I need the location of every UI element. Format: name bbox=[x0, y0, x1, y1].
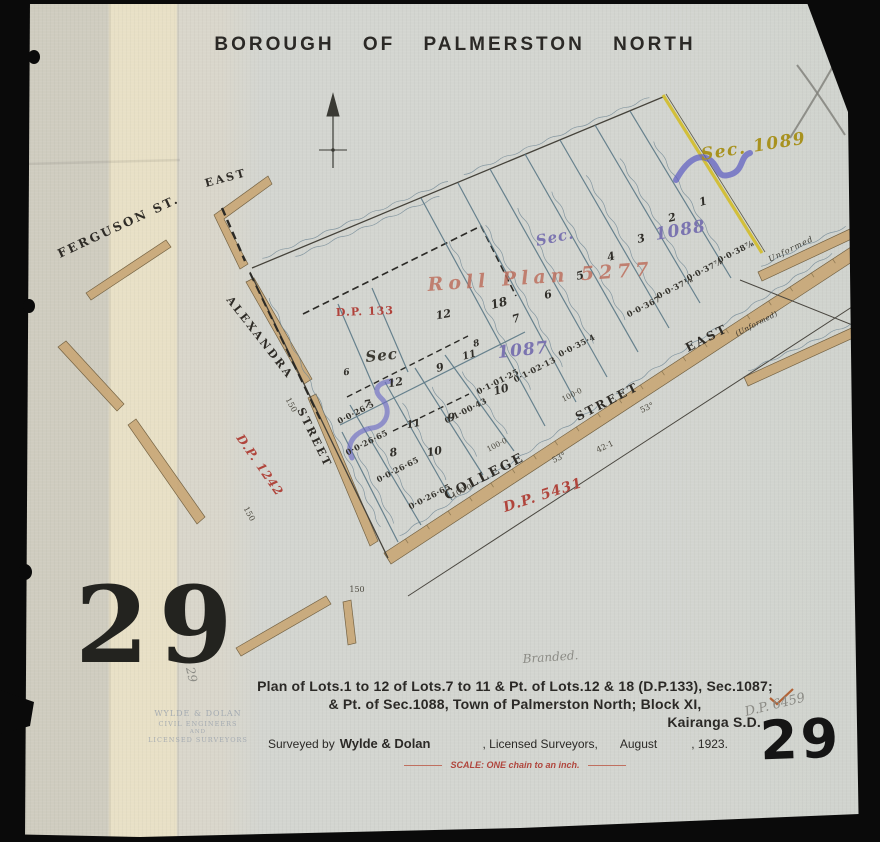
dim-53-b: 53° bbox=[639, 401, 656, 415]
scanned-survey-plan: FERGUSON ST.EASTALEXANDRASTREETCOLLEGEST… bbox=[0, 0, 880, 842]
sheet-number-marker: 29 bbox=[759, 707, 842, 773]
lot-7: 7 bbox=[511, 311, 522, 326]
punch-hole bbox=[23, 299, 35, 313]
label-east-upper: EAST bbox=[203, 166, 248, 190]
scale-rule-left bbox=[404, 765, 442, 766]
label-sec-1088-num: 1088 bbox=[653, 216, 707, 245]
lot-boundary-line bbox=[630, 111, 731, 278]
label-sec-1089: Sec. 1089 bbox=[700, 129, 808, 165]
street-band-college-sw bbox=[236, 596, 331, 656]
lot-10b: 10 bbox=[426, 444, 444, 460]
area-lot12b: 0·0·26·5 bbox=[335, 399, 375, 426]
street-band-east-ext bbox=[744, 325, 862, 386]
scale-rule-right bbox=[588, 765, 626, 766]
lot-18: 18 bbox=[489, 294, 509, 312]
plan-caption-line1: Plan of Lots.1 to 12 of Lots.7 to 11 & P… bbox=[255, 678, 775, 694]
stamp-line3: AND bbox=[189, 729, 206, 735]
plan-title: BOROUGH OF PALMERSTON NORTH bbox=[175, 34, 735, 56]
lot-6b: 6 bbox=[343, 367, 352, 378]
label-roll-plan: Roll Plan 5277 bbox=[426, 258, 655, 296]
scale-note-row: SCALE: ONE chain to an inch. bbox=[255, 760, 775, 770]
lot-12b: 12 bbox=[387, 375, 405, 391]
lot-8b: 8 bbox=[388, 445, 398, 459]
label-sec-1088-word: Sec. bbox=[534, 224, 576, 250]
lot-1: 1 bbox=[698, 194, 709, 209]
street-band-alexandra-sw2 bbox=[128, 419, 205, 524]
stamp-line4: LICENSED SURVEYORS bbox=[148, 736, 248, 744]
stamp-line1: WYLDE & DOLAN bbox=[154, 709, 241, 718]
survey-year: , 1923. bbox=[691, 737, 728, 751]
measurement-writing-squiggle bbox=[464, 98, 650, 175]
north-arrow-icon bbox=[319, 94, 347, 168]
punch-hole bbox=[18, 564, 32, 580]
lot-11b: 11 bbox=[406, 418, 422, 431]
label-dp-1242: D.P. 1242 bbox=[233, 431, 286, 499]
survey-credit: Surveyed byWylde & Dolan, Licensed Surve… bbox=[268, 736, 788, 751]
lot-boundary-lines bbox=[338, 111, 731, 542]
survey-credit-suffix: , Licensed Surveyors, bbox=[482, 737, 597, 751]
street-band-alexandra-sw1 bbox=[58, 341, 124, 411]
lot-12: 12 bbox=[435, 307, 453, 323]
lot-3: 3 bbox=[636, 231, 647, 246]
dim-42-1: 42·1 bbox=[595, 439, 615, 455]
lot-9: 9 bbox=[435, 360, 446, 375]
measurement-writing-squiggle bbox=[295, 196, 439, 256]
area-lot5: 0·0·35·4 bbox=[556, 332, 596, 359]
street-band-stub bbox=[343, 600, 356, 645]
survey-credit-prefix-real: Surveyed by bbox=[268, 737, 335, 751]
plan-caption-line2: & Pt. of Sec.1088, Town of Palmerston No… bbox=[255, 696, 775, 712]
lot-6: 6 bbox=[543, 287, 554, 302]
measurement-writing-squiggle bbox=[262, 181, 448, 258]
punch-hole bbox=[28, 50, 40, 64]
dim-100-a: 100·0 bbox=[485, 436, 508, 454]
stamp-line2: CIVIL ENGINEERS bbox=[159, 720, 238, 728]
label-dp-133: D.P. 133 bbox=[336, 304, 394, 319]
sheet-number-stencil: 29 bbox=[75, 572, 243, 678]
dim-100-b: 100·0 bbox=[560, 386, 583, 404]
lot-boundary-line bbox=[525, 154, 638, 352]
street-band-corner bbox=[214, 176, 272, 269]
street-band-ferguson bbox=[86, 240, 171, 300]
survey-month: August bbox=[620, 737, 657, 751]
dashed-old-boundaries bbox=[222, 208, 516, 431]
scale-note: SCALE: ONE chain to an inch. bbox=[450, 760, 579, 770]
measurement-writing-squiggle bbox=[748, 324, 851, 371]
area-lot3: 0·0·37⅛ bbox=[655, 274, 695, 301]
surveyor-names: Wylde & Dolan bbox=[340, 736, 431, 751]
dim-150-b: 150 bbox=[242, 505, 257, 523]
pencil-branded: Branded. bbox=[521, 648, 579, 666]
dim-150-c: 150 bbox=[349, 585, 364, 594]
label-sec-1087-word: Sec bbox=[365, 345, 399, 366]
lot-11: 11 bbox=[461, 348, 477, 362]
plan-caption-line3: Kairanga S.D. bbox=[255, 714, 775, 730]
pencil-marks bbox=[770, 59, 845, 704]
